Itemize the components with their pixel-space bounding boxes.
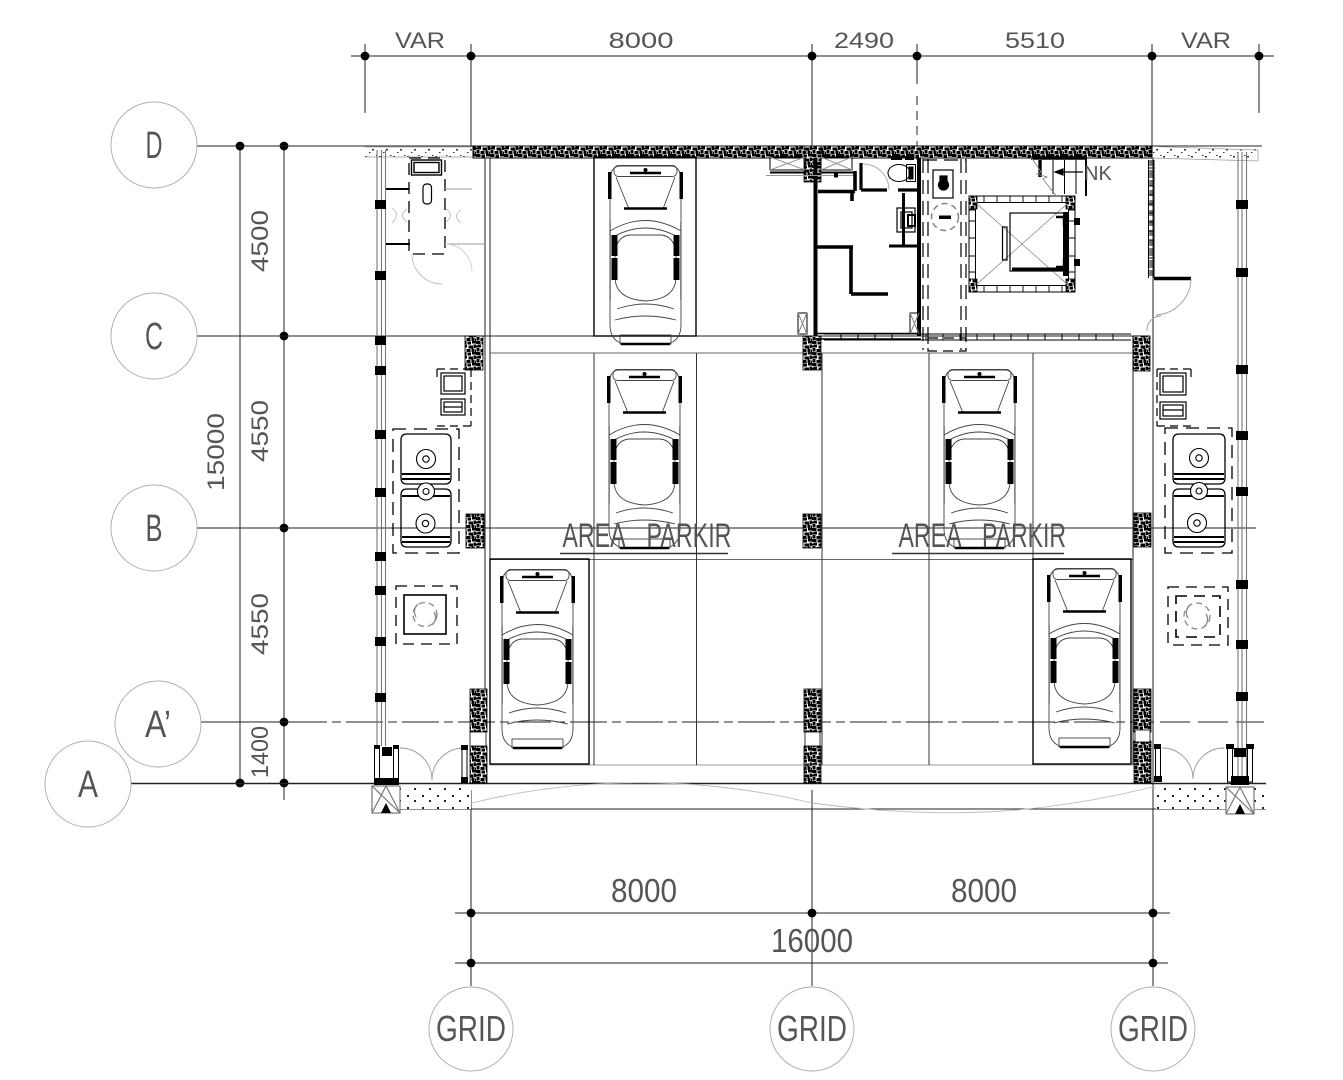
svg-text:B: B — [146, 508, 163, 550]
svg-text:8000: 8000 — [951, 872, 1017, 909]
svg-text:PARKIR: PARKIR — [982, 517, 1066, 555]
svg-text:VAR: VAR — [395, 28, 445, 53]
svg-text:GRID: GRID — [436, 1008, 506, 1049]
svg-text:4550: 4550 — [247, 593, 274, 655]
svg-text:8000: 8000 — [609, 28, 674, 53]
svg-text:C: C — [145, 316, 163, 358]
svg-text:8000: 8000 — [611, 872, 677, 909]
svg-text:GRID: GRID — [1118, 1008, 1188, 1049]
svg-text:A’: A’ — [145, 704, 171, 746]
svg-text:1400: 1400 — [247, 726, 274, 778]
svg-text:16000: 16000 — [771, 922, 853, 959]
svg-text:VAR: VAR — [1181, 28, 1231, 53]
svg-text:NK: NK — [1084, 163, 1112, 185]
svg-text:4550: 4550 — [247, 400, 274, 462]
svg-text:GRID: GRID — [777, 1008, 847, 1049]
svg-text:4500: 4500 — [247, 210, 274, 272]
svg-text:5510: 5510 — [1005, 28, 1065, 53]
svg-text:D: D — [146, 125, 163, 167]
svg-text:2490: 2490 — [834, 28, 894, 53]
svg-text:AREA: AREA — [899, 517, 962, 555]
svg-text:AREA: AREA — [563, 517, 626, 555]
svg-text:15000: 15000 — [203, 413, 230, 491]
svg-text:A: A — [78, 764, 99, 806]
svg-text:PARKIR: PARKIR — [647, 517, 732, 555]
